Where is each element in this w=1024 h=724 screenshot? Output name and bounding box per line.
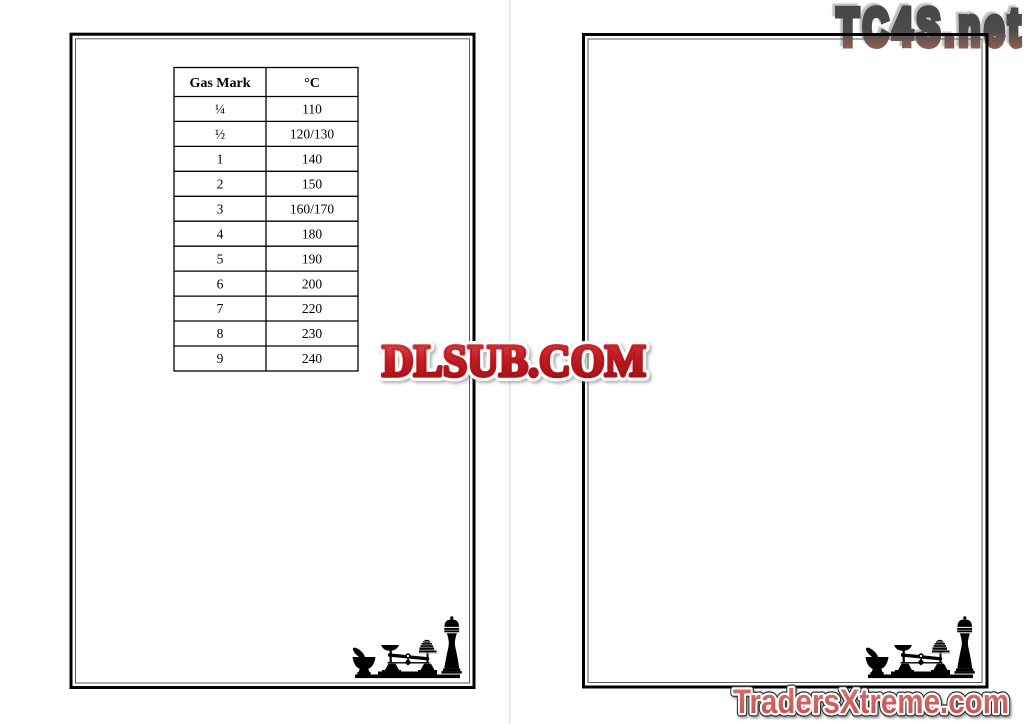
svg-text:140: 140 [302, 152, 323, 167]
svg-text:7: 7 [217, 301, 224, 316]
svg-text:TC4S.net: TC4S.net [837, 0, 1024, 57]
svg-text:5: 5 [217, 251, 224, 266]
svg-text:2: 2 [217, 177, 224, 192]
svg-text:3: 3 [217, 201, 224, 216]
svg-text:180: 180 [302, 226, 323, 241]
svg-text:°C: °C [304, 76, 320, 91]
svg-text:¼: ¼ [215, 102, 225, 117]
svg-text:½: ½ [215, 127, 225, 142]
svg-text:TradersXtreme.com: TradersXtreme.com [733, 683, 1009, 721]
svg-text:9: 9 [217, 351, 224, 366]
svg-text:6: 6 [217, 276, 224, 291]
svg-text:230: 230 [302, 326, 323, 341]
svg-text:DLSUB.COM: DLSUB.COM [382, 336, 646, 386]
svg-text:120/130: 120/130 [290, 127, 335, 142]
svg-text:Gas Mark: Gas Mark [189, 76, 250, 91]
svg-text:8: 8 [217, 326, 224, 341]
svg-text:1: 1 [217, 152, 224, 167]
svg-text:110: 110 [302, 102, 322, 117]
svg-text:150: 150 [302, 177, 323, 192]
svg-text:190: 190 [302, 251, 323, 266]
svg-text:160/170: 160/170 [290, 201, 335, 216]
svg-text:200: 200 [302, 276, 323, 291]
svg-text:240: 240 [302, 351, 323, 366]
svg-text:220: 220 [302, 301, 323, 316]
svg-text:4: 4 [217, 226, 224, 241]
